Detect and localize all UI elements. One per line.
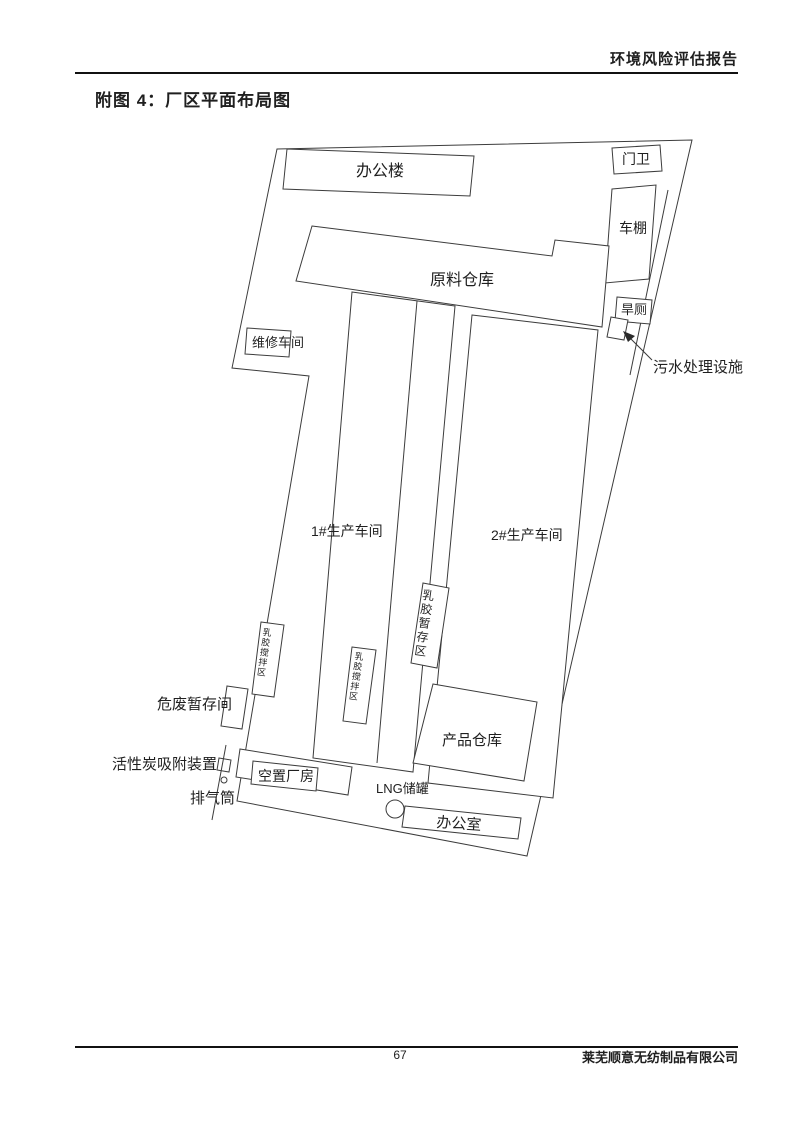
label-raw-material-warehouse: 原料仓库	[430, 272, 494, 290]
lng-tank-symbol	[386, 800, 404, 818]
exhaust-stack-symbol	[221, 777, 227, 783]
carbon-adsorption-symbol	[217, 758, 231, 772]
label-gate-guard: 门卫	[622, 151, 650, 167]
label-workshop-1: 1#生产车间	[311, 523, 383, 539]
label-carbon-adsorption: 活性炭吸附装置	[112, 756, 217, 773]
label-vacant-factory: 空置厂房	[258, 768, 314, 784]
label-hazardous-waste-room: 危废暂存间	[157, 696, 232, 713]
label-sewage-treatment: 污水处理设施	[653, 359, 743, 376]
label-bike-shed: 车棚	[619, 220, 647, 236]
label-office-room: 办公室	[436, 814, 482, 834]
report-page: 环境风险评估报告 附图 4：厂区平面布局图 67 莱芜顺意无纺制品有限公司	[0, 0, 800, 1131]
sewage-facility-box	[607, 317, 628, 340]
label-lng-tank: LNG储罐	[376, 782, 429, 797]
label-dry-toilet: 旱厕	[621, 303, 647, 318]
label-product-warehouse: 产品仓库	[442, 732, 502, 749]
label-maintenance-workshop: 维修车间	[252, 336, 304, 351]
label-workshop-2: 2#生产车间	[491, 527, 563, 543]
label-office-building: 办公楼	[356, 163, 404, 181]
label-exhaust-stack: 排气筒	[190, 790, 235, 807]
